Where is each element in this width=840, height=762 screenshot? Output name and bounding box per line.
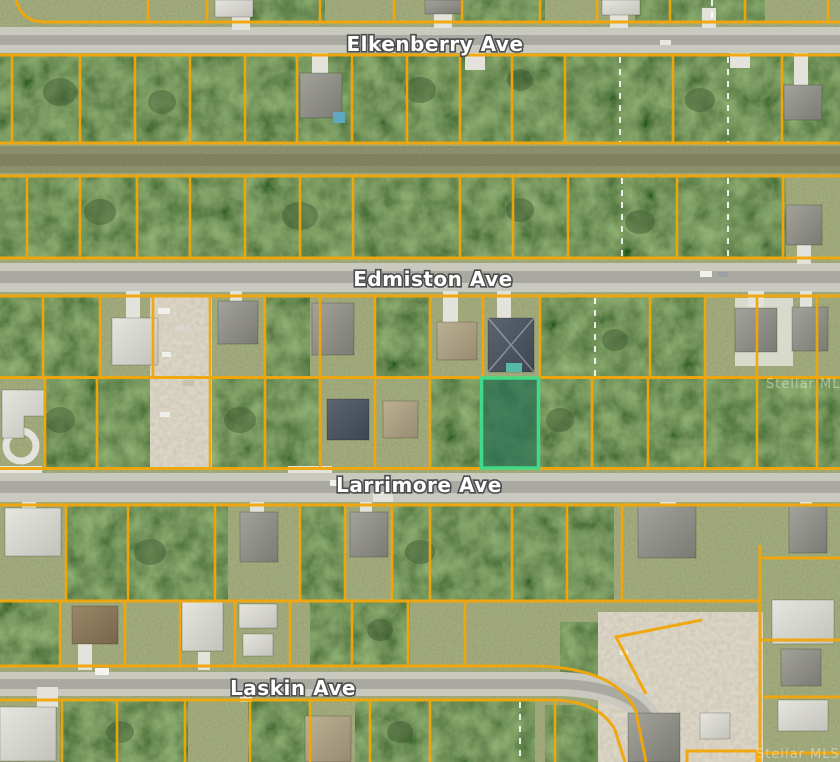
shed-roof [239,604,277,628]
pool [506,363,522,372]
street-label-larrimore: Larrimore Ave [336,473,502,497]
street-label-laskin: Laskin Ave [230,676,356,700]
house-roof [327,399,369,440]
house-roof [488,318,534,372]
house-roof [628,713,680,762]
house-roof [312,303,354,355]
street-label-edmiston: Edmiston Ave [353,267,512,291]
house-roof [305,716,351,762]
house-roof [72,606,118,644]
house-roof [786,205,822,245]
house-roof [182,602,223,651]
house-roof [772,600,834,644]
house-roof [602,0,640,15]
house-roof [437,322,477,360]
house-roof [218,301,258,344]
street-label-elkenberry: Elkenberry Ave [346,32,523,56]
pool [333,112,345,123]
house-roof [240,512,278,562]
house-roof [778,700,828,731]
aerial-parcel-map: Elkenberry Ave Edmiston Ave Larrimore Av… [0,0,840,762]
house-roof [300,73,342,118]
house-roof [383,401,418,438]
map-canvas: Elkenberry Ave Edmiston Ave Larrimore Av… [0,0,840,762]
house-roof [0,707,56,761]
house-roof [425,0,461,14]
house-roof [781,649,821,686]
house-roof [112,318,158,365]
mls-watermark: Stellar MLS [756,747,840,762]
house-roof [789,506,827,553]
subject-parcel-highlight[interactable] [482,378,539,468]
house-roof [792,307,828,351]
mls-watermark: Stellar MLS [766,377,840,392]
dirt-track [0,146,840,173]
house-roof [638,506,696,558]
house-roof [5,508,61,556]
house-roof [350,512,388,557]
house-roof [215,0,253,17]
shed-roof [700,713,730,739]
shed-roof [243,634,273,656]
house-roof [784,85,822,120]
